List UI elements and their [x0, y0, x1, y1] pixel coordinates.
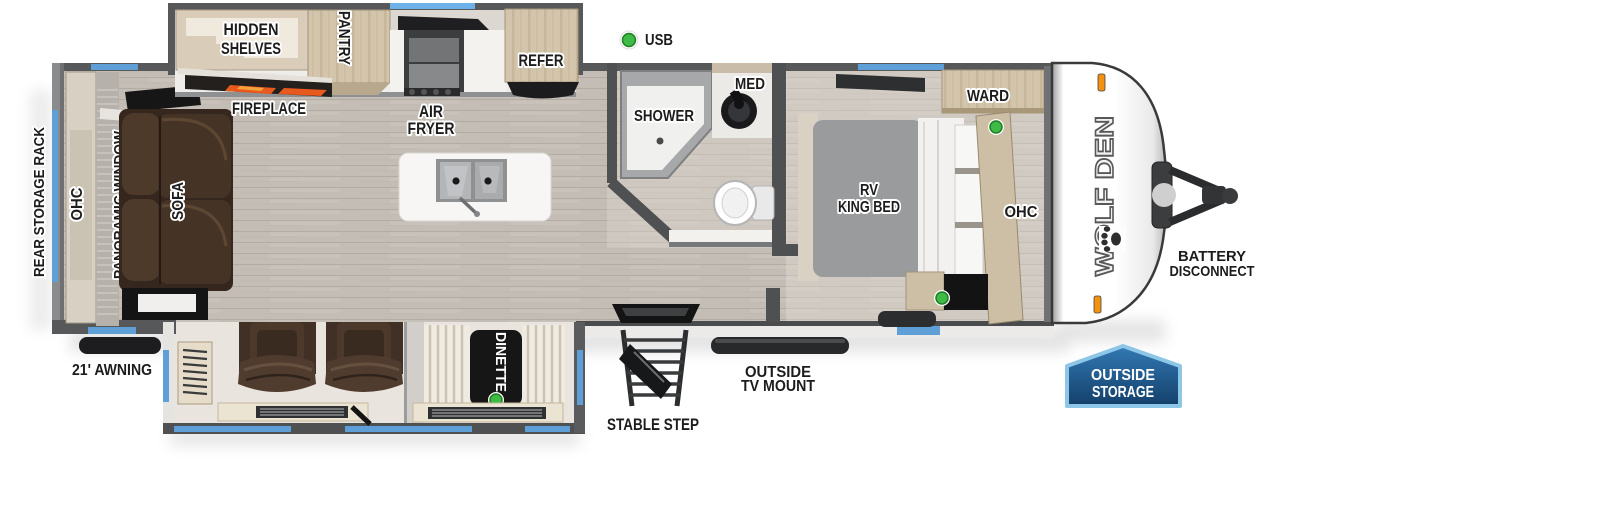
svg-text:OHC: OHC [69, 187, 86, 220]
svg-text:STABLE STEP: STABLE STEP [607, 415, 699, 434]
svg-text:DINETTE: DINETTE [492, 332, 509, 392]
svg-text:DISCONNECT: DISCONNECT [1170, 263, 1255, 280]
svg-text:SHELVES: SHELVES [221, 40, 281, 58]
svg-text:USB: USB [645, 32, 673, 49]
svg-text:TV MOUNT: TV MOUNT [741, 378, 815, 395]
svg-text:REFER: REFER [519, 52, 564, 70]
svg-text:AIR: AIR [419, 103, 443, 121]
svg-text:RV: RV [860, 182, 878, 199]
svg-text:REAR STORAGE RACK: REAR STORAGE RACK [31, 127, 48, 277]
svg-text:KING BED: KING BED [838, 199, 900, 216]
svg-text:FRYER: FRYER [408, 120, 455, 138]
svg-text:MED: MED [735, 76, 765, 93]
svg-text:PANTRY: PANTRY [335, 11, 352, 65]
svg-text:OUTSIDE: OUTSIDE [1091, 367, 1155, 384]
svg-text:SOFA: SOFA [170, 182, 187, 220]
svg-text:FIREPLACE: FIREPLACE [232, 100, 306, 118]
svg-text:OHC: OHC [1005, 204, 1038, 221]
svg-text:WARD: WARD [967, 88, 1009, 105]
svg-text:STORAGE: STORAGE [1092, 384, 1154, 401]
svg-text:21' AWNING: 21' AWNING [72, 362, 152, 379]
svg-text:HIDDEN: HIDDEN [224, 21, 279, 39]
svg-text:SHOWER: SHOWER [634, 108, 694, 125]
